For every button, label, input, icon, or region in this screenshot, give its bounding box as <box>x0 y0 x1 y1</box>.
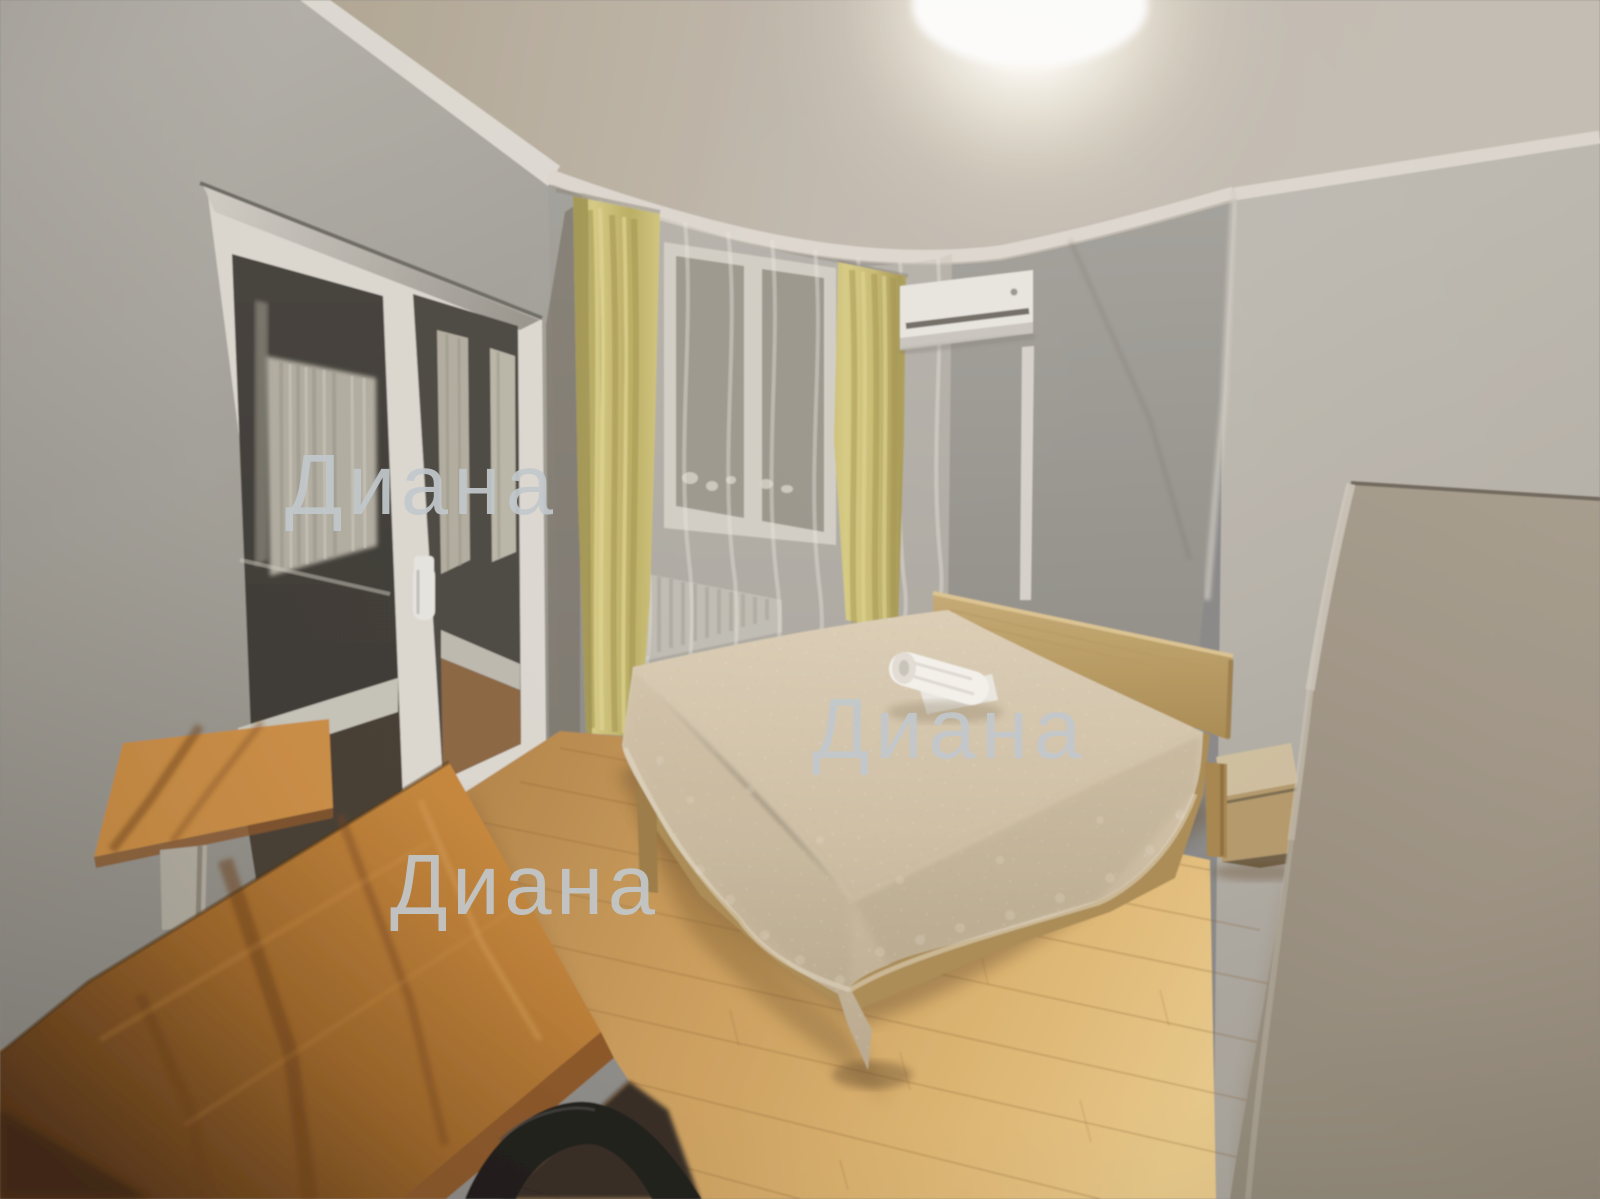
svg-text:Диана: Диана <box>285 438 554 533</box>
svg-text:Диана: Диана <box>390 838 656 933</box>
svg-text:Диана: Диана <box>812 682 1082 777</box>
